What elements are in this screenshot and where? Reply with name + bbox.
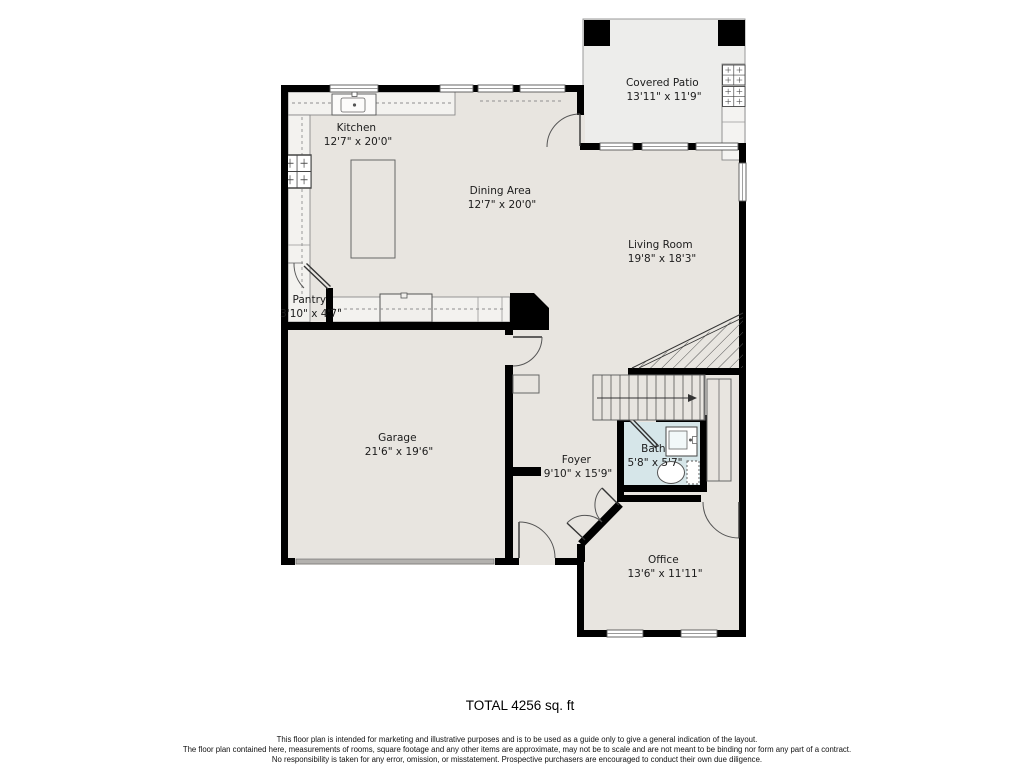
garage-door	[296, 559, 494, 564]
wall-stub	[577, 544, 585, 562]
disclaimer: This floor plan is intended for marketin…	[183, 735, 851, 764]
patio-post-left	[584, 20, 610, 46]
wall-mudroom	[505, 467, 541, 476]
wall-bath-right	[700, 415, 707, 492]
floor-plan-canvas: Covered Patio 13'11" x 11'9" Kitchen 12'…	[0, 0, 1024, 768]
wall-garage-right	[505, 365, 513, 558]
outdoor-grill-top	[723, 65, 746, 85]
mudroom-closet	[513, 375, 539, 393]
floor-plan-page: Covered Patio 13'11" x 11'9" Kitchen 12'…	[0, 0, 1024, 768]
living-patio-window	[642, 143, 688, 150]
kitchen-island	[351, 160, 395, 258]
wall-garage-bottom	[281, 558, 295, 565]
wall-office-top	[617, 495, 701, 502]
dining-window	[440, 85, 473, 92]
wall-bath-bottom	[617, 485, 707, 492]
kitchen-sink	[332, 91, 376, 116]
wall-stairs-top	[628, 368, 746, 375]
disclaimer-line-3: No responsibility is taken for any error…	[272, 755, 762, 764]
living-patio-window	[600, 143, 633, 150]
wall-right	[739, 143, 746, 637]
wall-bath-left	[617, 415, 624, 492]
appliance-notch	[401, 293, 407, 298]
dining-window	[520, 85, 565, 92]
patio-post-right	[718, 20, 745, 46]
wall-garage-bottom	[495, 558, 519, 565]
outdoor-grill-bottom	[723, 87, 746, 107]
wall-office-left	[577, 558, 584, 637]
disclaimer-line-2: The floor plan contained here, measureme…	[183, 745, 851, 754]
total-square-footage: TOTAL 4256 sq. ft	[466, 698, 575, 713]
wall-office-bottom	[577, 630, 746, 637]
living-side-window	[739, 163, 746, 201]
kitchen-counter-left	[288, 115, 310, 322]
wall-patio-connector	[577, 85, 584, 115]
living-patio-window	[696, 143, 738, 150]
office-window	[681, 630, 717, 637]
office-window	[607, 630, 643, 637]
front-doorway-floor	[517, 558, 557, 565]
wall-garage-top	[281, 322, 513, 330]
patio-doorway-floor	[577, 113, 585, 145]
bath-sink	[666, 427, 697, 456]
kitchen-window	[330, 85, 378, 92]
disclaimer-line-1: This floor plan is intended for marketin…	[277, 735, 758, 744]
dining-window	[478, 85, 513, 92]
